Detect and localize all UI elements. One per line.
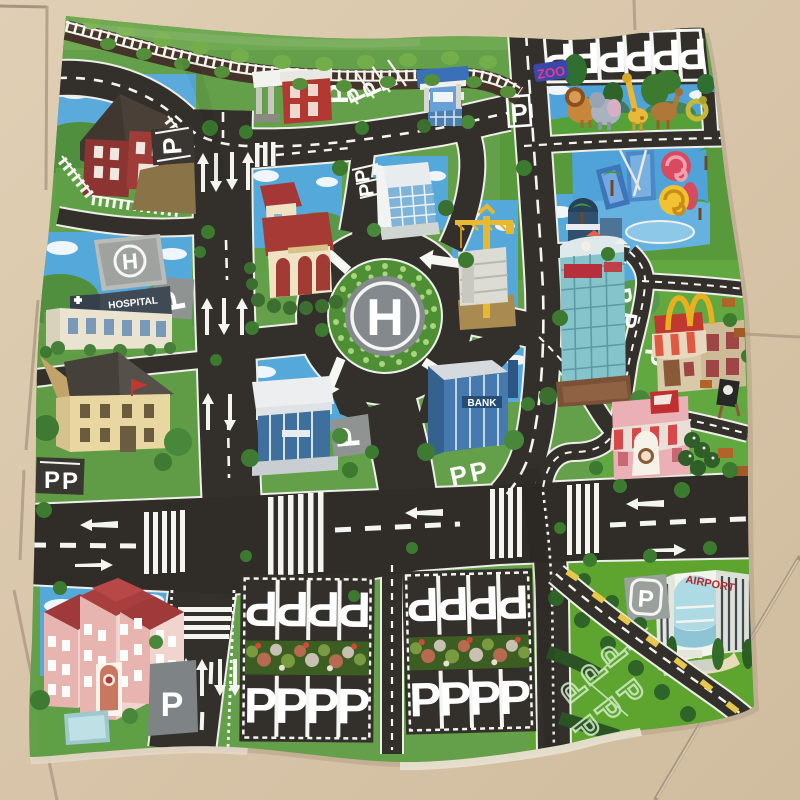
svg-text:P: P (244, 677, 278, 733)
svg-text:P: P (307, 581, 341, 637)
svg-text:P: P (439, 673, 472, 727)
svg-text:P: P (597, 32, 628, 82)
svg-text:P: P (62, 468, 78, 495)
svg-text:P: P (509, 97, 528, 128)
svg-text:P: P (677, 29, 708, 79)
svg-text:P: P (44, 467, 60, 494)
svg-text:P: P (245, 580, 279, 636)
svg-text:P: P (275, 678, 309, 734)
svg-text:P: P (409, 674, 442, 728)
svg-text:P: P (161, 686, 184, 724)
svg-text:P: P (499, 671, 532, 725)
svg-text:P: P (338, 581, 372, 637)
svg-text:P: P (637, 585, 655, 613)
svg-text:H: H (366, 289, 404, 347)
svg-text:P: P (436, 576, 469, 630)
svg-text:P: P (496, 574, 529, 628)
svg-text:P: P (306, 678, 340, 734)
svg-text:BANK: BANK (468, 398, 498, 409)
svg-text:P: P (337, 678, 371, 734)
svg-text:P: P (469, 672, 502, 726)
svg-text:P: P (406, 577, 439, 631)
svg-text:P: P (624, 31, 655, 81)
svg-text:P: P (276, 581, 310, 637)
svg-text:P: P (466, 575, 499, 629)
svg-text:P: P (156, 136, 187, 155)
svg-text:H: H (121, 248, 139, 274)
